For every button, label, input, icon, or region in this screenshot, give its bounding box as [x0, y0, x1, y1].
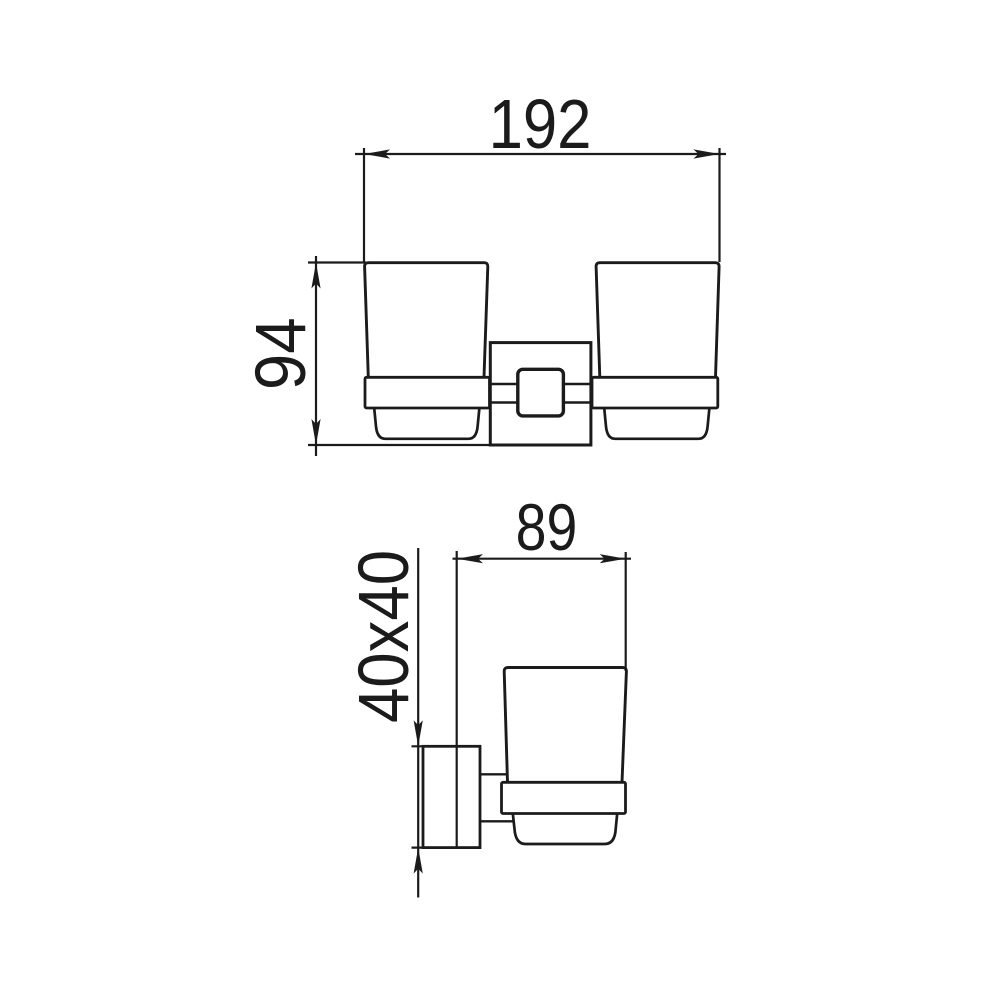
svg-text:89: 89 — [516, 490, 578, 564]
svg-text:94: 94 — [242, 317, 321, 390]
svg-text:40x40: 40x40 — [345, 550, 424, 723]
svg-text:192: 192 — [489, 84, 592, 163]
